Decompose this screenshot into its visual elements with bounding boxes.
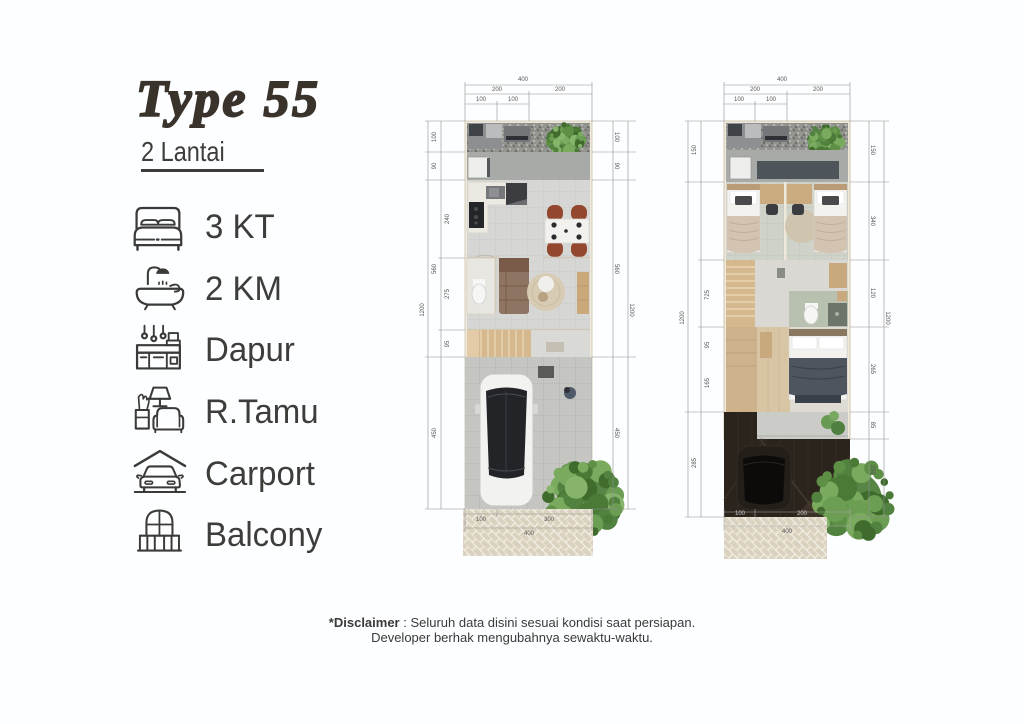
svg-text:150: 150 (869, 145, 875, 156)
svg-text:90: 90 (613, 163, 619, 170)
svg-text:90: 90 (432, 162, 438, 169)
svg-text:165: 165 (705, 377, 711, 388)
svg-text:400: 400 (524, 531, 535, 537)
svg-text:285: 285 (692, 457, 698, 468)
svg-text:725: 725 (705, 289, 711, 300)
svg-text:100: 100 (432, 131, 438, 142)
svg-text:400: 400 (777, 77, 788, 83)
svg-text:150: 150 (692, 144, 698, 155)
svg-text:1200: 1200 (420, 303, 426, 317)
svg-text:275: 275 (445, 288, 451, 299)
svg-text:265: 265 (869, 364, 875, 375)
svg-text:560: 560 (613, 264, 619, 275)
svg-text:100: 100 (766, 97, 777, 103)
svg-text:300: 300 (544, 517, 555, 523)
svg-text:1200: 1200 (680, 311, 686, 325)
svg-text:95: 95 (445, 340, 451, 347)
svg-text:200: 200 (555, 87, 566, 93)
svg-text:200: 200 (492, 87, 503, 93)
svg-text:120: 120 (869, 288, 875, 299)
svg-text:85: 85 (869, 422, 875, 429)
svg-text:95: 95 (705, 341, 711, 348)
svg-text:400: 400 (518, 77, 529, 83)
svg-text:240: 240 (445, 213, 451, 224)
svg-text:400: 400 (782, 529, 793, 535)
svg-text:340: 340 (869, 216, 875, 227)
svg-text:560: 560 (432, 263, 438, 274)
svg-text:280: 280 (869, 465, 875, 476)
svg-text:1200: 1200 (628, 303, 634, 317)
svg-text:200: 200 (750, 87, 761, 93)
svg-text:100: 100 (734, 97, 745, 103)
svg-text:100: 100 (476, 97, 487, 103)
svg-text:450: 450 (432, 427, 438, 438)
svg-text:100: 100 (613, 132, 619, 143)
svg-text:200: 200 (813, 87, 824, 93)
svg-text:450: 450 (613, 428, 619, 439)
svg-text:100: 100 (476, 517, 487, 523)
svg-text:1200: 1200 (884, 311, 890, 325)
svg-text:200: 200 (797, 511, 808, 517)
svg-text:100: 100 (508, 97, 519, 103)
svg-text:100: 100 (735, 511, 746, 517)
